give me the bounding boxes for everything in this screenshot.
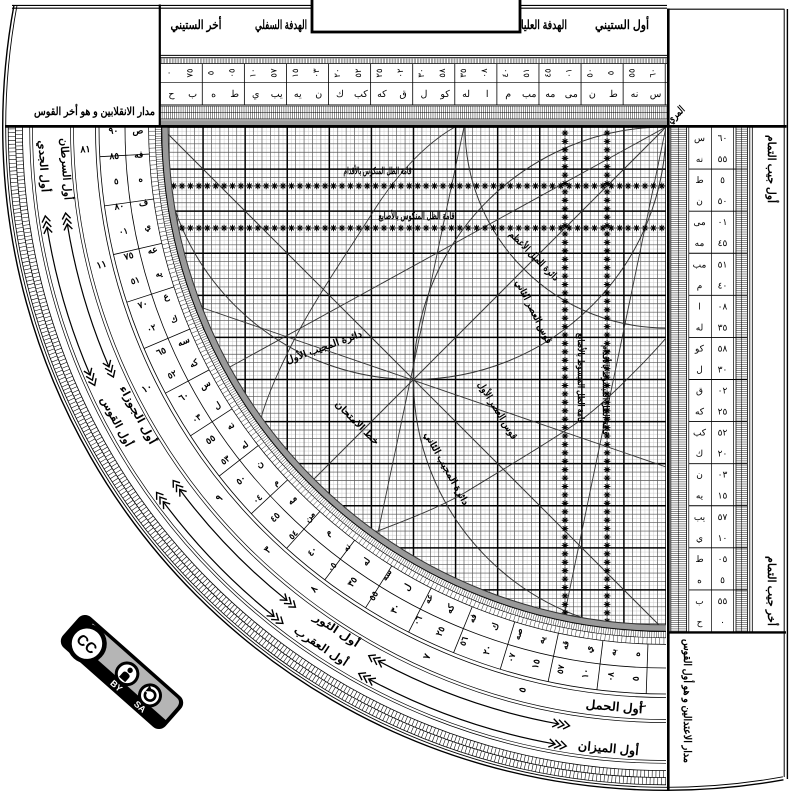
svg-text:ب: ب	[188, 89, 197, 100]
svg-text:٠٢: ٠٢	[718, 386, 728, 396]
svg-text:٠٢: ٠٢	[395, 68, 405, 78]
svg-text:٣٥: ٣٥	[458, 68, 468, 78]
svg-text:مدار الانقلابين و هو أخر القوس: مدار الانقلابين و هو أخر القوس	[34, 104, 155, 118]
svg-text:٥: ٥	[720, 575, 725, 585]
svg-text:٨٠: ٨٠	[113, 201, 125, 212]
svg-text:أخر جيب التمام: أخر جيب التمام	[765, 556, 779, 626]
svg-text:٥٢: ٥٢	[718, 428, 728, 438]
svg-text:٣٥: ٣٥	[718, 322, 728, 332]
svg-text:٥٧: ٥٧	[269, 68, 279, 78]
svg-text:٥٠: ٥٠	[718, 196, 728, 206]
svg-text:٥٥: ٥٥	[718, 596, 728, 606]
svg-text:ن: ن	[696, 196, 703, 206]
svg-text:٠٨: ٠٨	[479, 68, 489, 78]
svg-text:يه: يه	[294, 89, 302, 100]
svg-text:٧٥: ٧٥	[185, 68, 195, 78]
svg-text:٠: ٠	[720, 617, 725, 627]
svg-text:١٠: ١٠	[718, 533, 728, 543]
svg-text:٢٥: ٢٥	[374, 68, 384, 78]
svg-text:٥٧: ٥٧	[718, 512, 728, 522]
svg-text:م: م	[697, 280, 703, 291]
svg-text:٤٥: ٤٥	[542, 68, 552, 78]
svg-text:ه: ه	[211, 89, 216, 100]
svg-text:ا: ا	[486, 89, 489, 100]
svg-text:٣٠: ٣٠	[416, 68, 426, 77]
svg-text:كو: كو	[694, 343, 705, 354]
svg-text:قامة الظل المبسوط بالأقدام: قامة الظل المبسوط بالأقدام	[600, 345, 612, 435]
svg-text:١٠: ١٠	[248, 68, 258, 77]
svg-text:٨٥: ٨٥	[108, 151, 119, 162]
svg-text:مى: مى	[565, 89, 578, 100]
svg-text:٢٠: ٢٠	[332, 68, 342, 77]
svg-text:قامة الظل المنكوس بالأقدام: قامة الظل المنكوس بالأقدام	[344, 165, 412, 177]
svg-text:٥٠: ٥٠	[584, 68, 594, 77]
svg-text:س: س	[650, 89, 662, 100]
svg-text:قامة الظل المبسوط بالأصابع: قامة الظل المبسوط بالأصابع	[575, 333, 587, 423]
svg-text:٠٥: ٠٥	[227, 68, 237, 78]
svg-text:مب: مب	[693, 259, 707, 269]
svg-text:مه: مه	[695, 238, 705, 248]
svg-text:٠: ٠	[164, 71, 174, 76]
svg-text:ق: ق	[696, 386, 703, 396]
svg-text:ي: ي	[696, 533, 703, 543]
svg-text:ك: ك	[336, 89, 344, 100]
svg-text:له: له	[462, 89, 470, 100]
svg-text:س: س	[694, 133, 705, 144]
svg-text:كو: كو	[439, 89, 450, 100]
svg-text:٠٥: ٠٥	[718, 554, 728, 564]
svg-text:يب: يب	[694, 512, 706, 522]
svg-text:٢٠: ٢٠	[718, 449, 728, 459]
svg-text:٥: ٥	[720, 175, 725, 185]
svg-text:ل: ل	[696, 365, 703, 375]
svg-text:٤٥: ٤٥	[718, 238, 728, 248]
svg-text:١٥: ١٥	[718, 491, 728, 501]
svg-text:قامة الظل المنكوس بالأصابع: قامة الظل المنكوس بالأصابع	[379, 210, 455, 222]
svg-text:نه: نه	[696, 154, 703, 164]
svg-text:٥: ٥	[206, 70, 216, 75]
svg-text:ح: ح	[168, 89, 175, 100]
svg-text:٥٨: ٥٨	[437, 68, 447, 78]
svg-text:ن: ن	[589, 89, 596, 100]
svg-text:ب: ب	[695, 596, 703, 606]
svg-text:الهدفة السفلي: الهدفة السفلي	[255, 18, 307, 33]
svg-text:٠١: ٠١	[563, 68, 573, 77]
svg-text:ق: ق	[399, 89, 406, 100]
svg-text:مدار الاعتدالين و هو أول القوس: مدار الاعتدالين و هو أول القوس	[681, 639, 695, 763]
svg-text:ل: ل	[421, 89, 428, 100]
svg-text:ط: ط	[609, 89, 618, 100]
svg-text:٦٠: ٦٠	[648, 68, 658, 77]
svg-text:٠٣: ٠٣	[718, 470, 728, 480]
svg-text:كب: كب	[693, 428, 707, 438]
svg-text:كه: كه	[695, 407, 705, 417]
svg-text:٠١: ٠١	[118, 225, 129, 237]
svg-text:٠١: ٠١	[718, 217, 728, 227]
svg-text:٣٠: ٣٠	[718, 365, 728, 375]
svg-text:ن: ن	[315, 89, 322, 100]
svg-text:٠٨: ٠٨	[718, 301, 728, 311]
svg-text:٠٣: ٠٣	[311, 68, 321, 78]
svg-text:٦٠: ٦٠	[718, 133, 728, 143]
svg-text:يب: يب	[271, 89, 283, 100]
svg-text:أخر الستيني: أخر الستيني	[171, 16, 222, 33]
svg-text:٥: ٥	[630, 676, 640, 681]
svg-text:ن: ن	[696, 470, 703, 480]
svg-text:ك: ك	[696, 449, 703, 459]
svg-text:كه: كه	[377, 89, 387, 100]
svg-text:٥١: ٥١	[521, 68, 531, 77]
svg-text:مب: مب	[522, 89, 536, 100]
svg-text:١٠: ١٠	[580, 668, 591, 679]
svg-text:الهدفة العليا: الهدفة العليا	[521, 18, 567, 33]
svg-text:ف: ف	[138, 197, 149, 208]
svg-text:له: له	[696, 322, 704, 332]
svg-text:كب: كب	[354, 89, 368, 100]
svg-text:ط: ط	[695, 175, 703, 185]
svg-text:قه: قه	[559, 640, 570, 650]
svg-text:يه: يه	[696, 491, 704, 501]
svg-text:٤٠: ٤٠	[500, 68, 510, 77]
svg-text:ه: ه	[632, 651, 642, 656]
svg-text:٥٥: ٥٥	[627, 68, 637, 78]
svg-text:ي: ي	[252, 89, 260, 100]
svg-text:٥١: ٥١	[718, 259, 728, 269]
svg-text:ا: ا	[698, 301, 701, 311]
svg-text:مى: مى	[693, 217, 706, 227]
svg-text:مه: مه	[545, 89, 555, 100]
svg-text:٥٨: ٥٨	[718, 343, 728, 353]
svg-text:ط: ط	[695, 554, 703, 564]
svg-text:٥: ٥	[605, 70, 615, 75]
svg-text:ح: ح	[697, 617, 703, 628]
svg-text:٥٢: ٥٢	[353, 68, 363, 78]
svg-text:٨١: ٨١	[79, 144, 91, 155]
svg-text:نه: نه	[631, 89, 639, 100]
svg-text:٠٨: ٠٨	[605, 671, 616, 681]
svg-text:ط: ط	[230, 89, 239, 100]
svg-text:فه: فه	[134, 149, 144, 160]
svg-text:٢٥: ٢٥	[718, 407, 728, 417]
svg-text:٥٥: ٥٥	[718, 154, 728, 164]
svg-text:١٥: ١٥	[290, 68, 300, 78]
svg-text:م: م	[505, 89, 511, 100]
svg-text:به: به	[608, 648, 619, 656]
svg-text:٤٠: ٤٠	[718, 280, 728, 290]
svg-text:ه: ه	[697, 575, 702, 585]
svg-text:أول الستيني: أول الستيني	[595, 16, 649, 33]
svg-text:أول جيب التمام: أول جيب التمام	[765, 135, 779, 203]
